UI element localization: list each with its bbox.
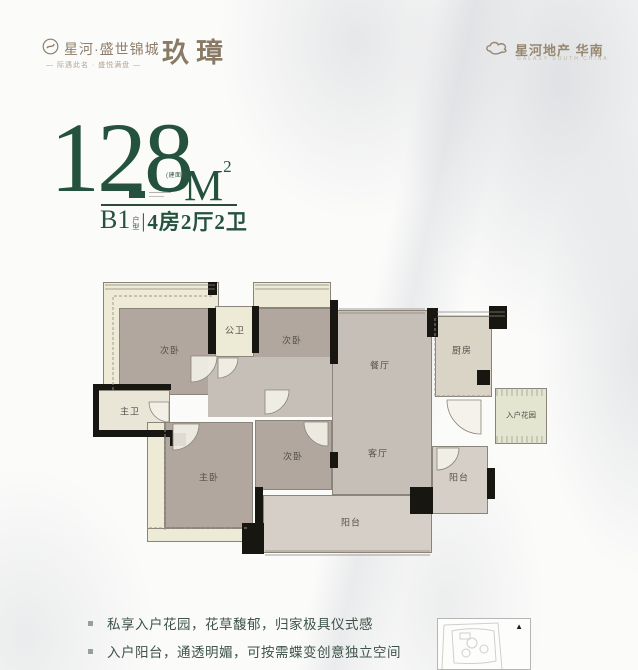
room-label-master-bath: 主卫 [120,405,140,418]
fine-print-line [149,192,171,193]
room-label-living: 客厅 [368,447,388,460]
site-map: ▲ [437,618,531,670]
accent-square [129,191,145,198]
room-label-utility-balcony: 阳台 [449,471,469,484]
area-unit: M2 [184,158,232,208]
seal-icon [42,38,59,55]
model-tag: 户 型 [132,217,139,231]
door-arc [437,448,459,470]
room-label-dining: 餐厅 [370,359,390,372]
room-label-bed3: 次卧 [283,450,303,463]
area-number: 128 [50,108,191,208]
dashed-lines [113,296,492,530]
unit-model-line: B1 户 型 | 4房2厅2卫 [100,207,248,233]
developer-sub: GALAXY SOUTH CHINA [517,56,609,62]
room-label-entry-garden: 入户花园 [506,410,536,421]
door-arc [173,424,199,450]
room-label-master-bed: 主卧 [199,471,219,484]
door-arc [447,400,481,434]
feature-item-2: 入户阳台，通透明媚，可按需蝶变创意独立空间 [107,641,401,661]
area-unit-sup: 2 [223,157,232,176]
layout-text: 4房2厅2卫 [147,211,248,233]
model-code: B1 [100,207,130,233]
door-arc [304,422,328,446]
floor-plan: 次卧 公卫 次卧 餐厅 厨房 入户花园 主卫 主卧 次卧 客厅 阳台 阳台 [85,270,563,585]
door-arc [149,402,169,422]
door-arc [265,390,289,414]
feature-item-1: 私享入户花园，花草馥郁，归家极具仪式感 [107,613,373,633]
bullet-square [88,621,93,626]
room-label-bed1: 次卧 [160,344,180,357]
room-label-public-bath: 公卫 [225,324,245,337]
door-arc [218,358,238,378]
room-label-bed2: 次卧 [282,334,302,347]
project-tagline: — 际遇此名 · 盛悦满盘 — [46,60,196,70]
door-arc [191,356,217,382]
room-label-balcony: 阳台 [341,516,361,529]
north-arrow-icon: ▲ [515,622,523,631]
model-divider: | [141,210,145,232]
cloud-icon [483,38,510,57]
room-label-kitchen: 厨房 [452,344,472,357]
project-name: 星河·盛世锦城 [64,39,160,59]
bullet-square [88,649,93,654]
floorplan-poster: 星河·盛世锦城 玖璋 — 际遇此名 · 盛悦满盘 — 星河地产 华南 GALAX… [0,0,638,670]
fine-print-line [149,196,164,197]
plan-detail-layer [85,270,563,585]
